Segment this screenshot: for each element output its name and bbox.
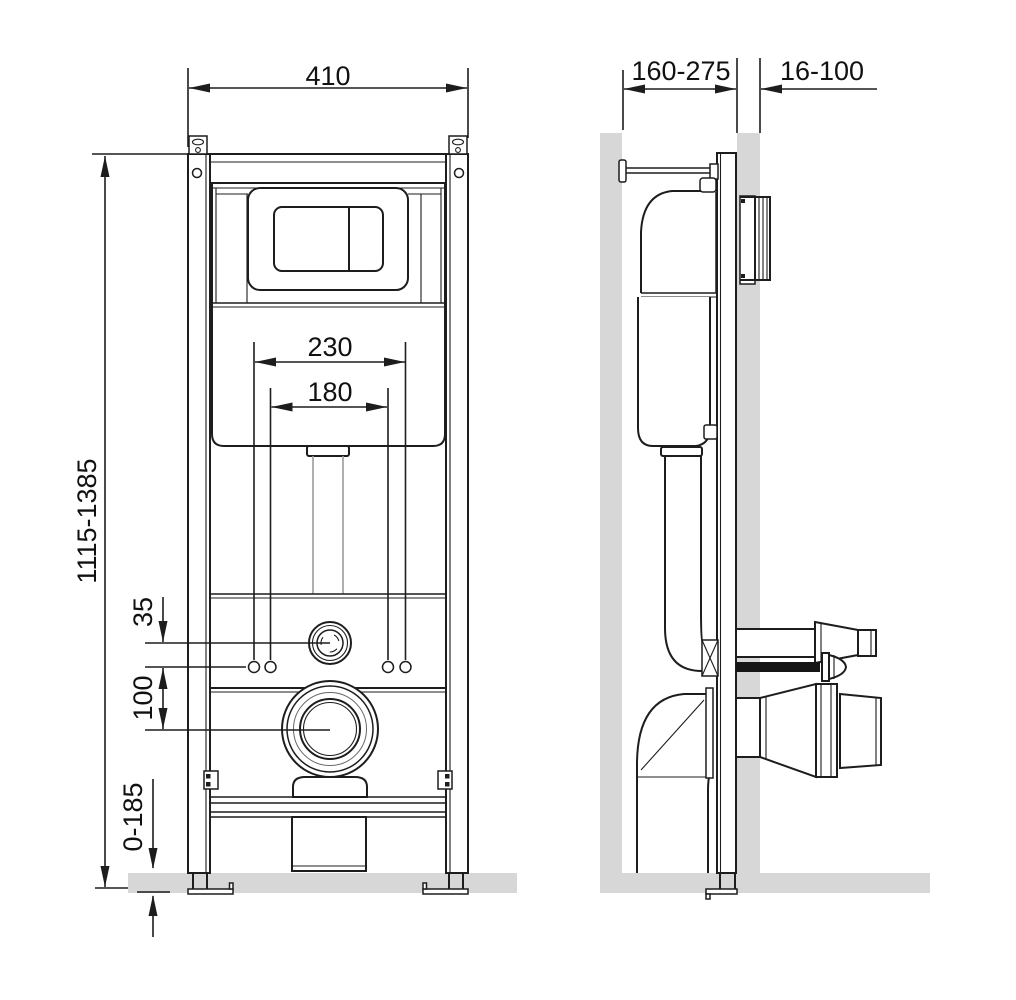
dim-label-100: 100 — [128, 675, 158, 720]
rail-hole — [193, 169, 202, 178]
front-view: 410 1115-1385 230 180 — [72, 61, 517, 937]
pipe-clamp-right — [438, 771, 452, 789]
rear-wall — [600, 133, 622, 873]
dim-foot-adjust: 0-185 — [118, 779, 170, 937]
dim-frame-height: 1115-1385 — [72, 154, 188, 888]
flush-pipe-front — [307, 446, 349, 594]
cistern-side — [638, 178, 717, 446]
dim-label-1115-1385: 1115-1385 — [72, 458, 102, 583]
flush-plate-side — [740, 196, 770, 284]
wall-bracket-left — [189, 136, 207, 154]
side-view: 160-275 16-100 — [600, 56, 930, 899]
frame-right-rail — [446, 154, 468, 873]
dim-label-410: 410 — [305, 61, 350, 91]
dim-inlet-offset: 35 — [128, 597, 330, 689]
dim-frame-width: 410 — [188, 61, 468, 147]
drain-pipe-down — [292, 817, 366, 871]
flush-connection-pipe — [736, 622, 876, 663]
bottom-cross-bars — [210, 797, 446, 817]
installation-diagram: 410 1115-1385 230 180 — [0, 0, 1016, 1000]
flush-buttons — [274, 207, 383, 271]
drain-port — [282, 681, 378, 777]
flush-pipe-side — [661, 447, 718, 676]
frame-left-rail — [188, 154, 210, 873]
overflow-fitting — [704, 425, 717, 439]
technical-drawing-page: 410 1115-1385 230 180 — [0, 0, 1016, 1000]
floor-side — [600, 873, 930, 893]
dim-label-180: 180 — [307, 377, 352, 407]
drain-bell — [293, 777, 367, 797]
wall-bracket-right — [449, 136, 467, 154]
drain-elbow-side — [637, 688, 713, 873]
pipe-clamp-left — [204, 771, 218, 789]
rail-hole — [455, 169, 464, 178]
dim-label-160-275: 160-275 — [631, 56, 730, 86]
flush-plate — [248, 188, 408, 290]
dim-label-35: 35 — [128, 597, 158, 627]
dim-label-230: 230 — [307, 332, 352, 362]
dim-label-16-100: 16-100 — [780, 56, 864, 86]
dim-install-depth: 160-275 — [623, 56, 737, 133]
dim-cladding-thickness: 16-100 — [760, 56, 877, 133]
dim-label-0-185: 0-185 — [118, 782, 148, 851]
frame-rail-side — [717, 153, 736, 873]
